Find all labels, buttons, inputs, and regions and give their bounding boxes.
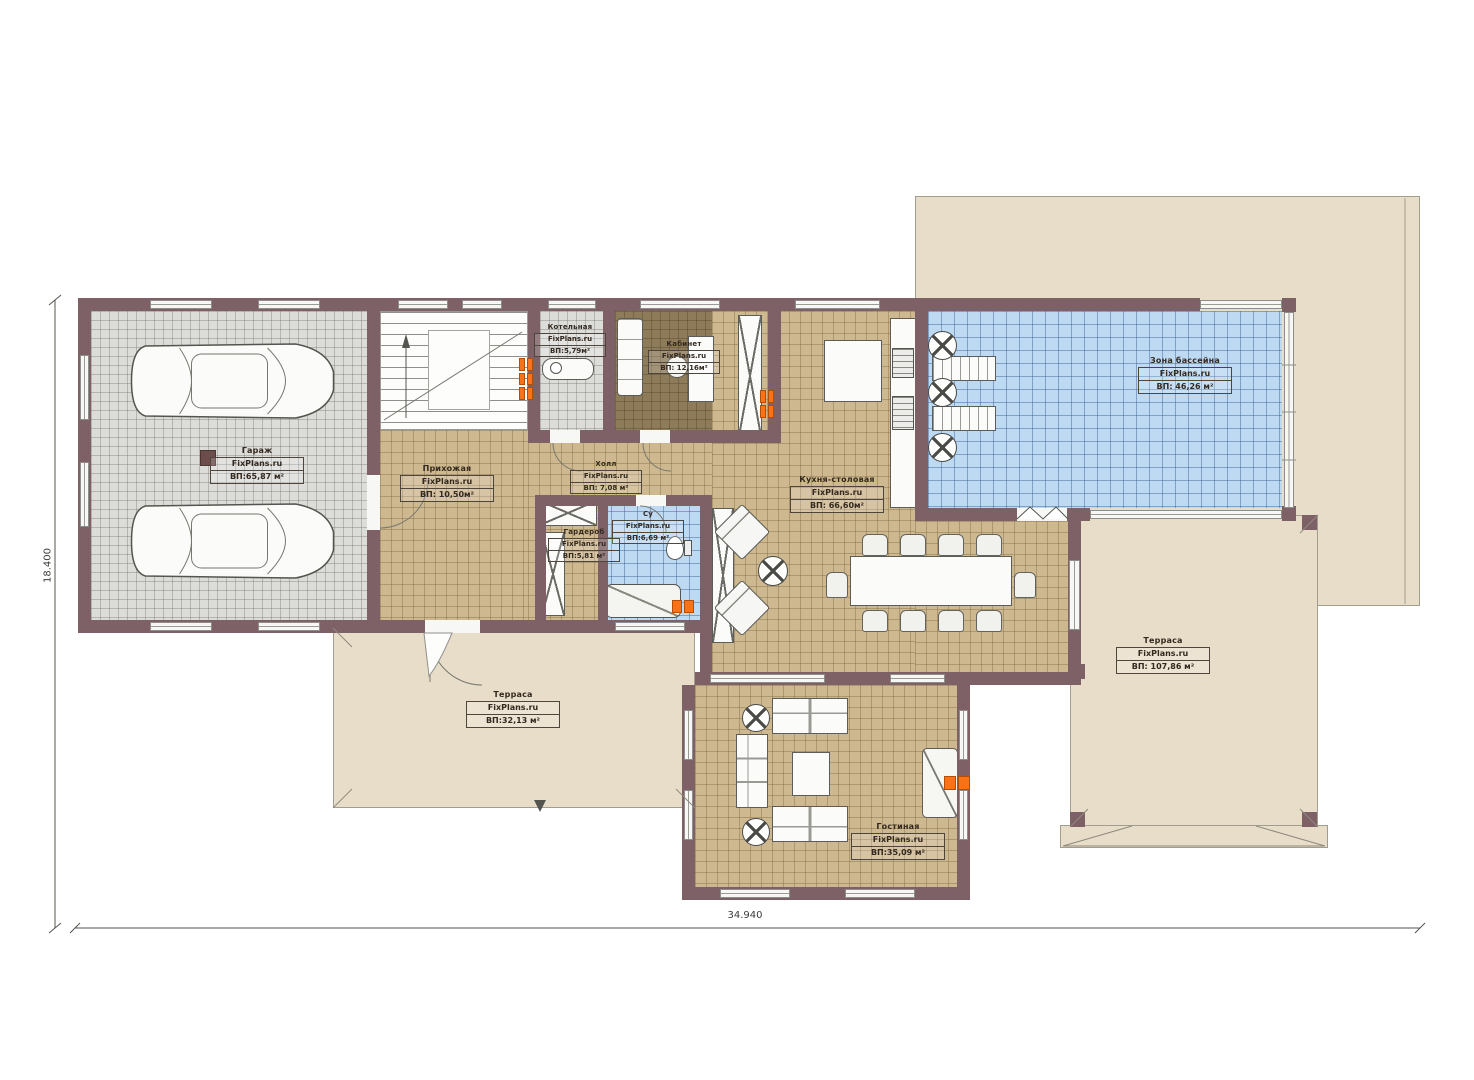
- room-label-garage: Гараж FixPlans.ruВП:65,87 м²: [210, 446, 304, 484]
- wall-segment: [915, 298, 928, 521]
- sliding-door: [710, 674, 825, 683]
- door-opening: [550, 430, 580, 443]
- dining-chair: [862, 610, 888, 632]
- wall-segment: [1067, 508, 1090, 521]
- watermark: FixPlans.ru: [535, 334, 605, 346]
- wall-segment: [367, 298, 380, 633]
- watermark: FixPlans.ru: [467, 702, 559, 715]
- ceiling-light-icon: [928, 331, 957, 360]
- sofa: [772, 698, 848, 734]
- pool-glazing: [1090, 510, 1282, 519]
- window: [258, 300, 320, 309]
- watermark: FixPlans.ru: [211, 458, 303, 471]
- car-icon: [125, 338, 340, 424]
- side-table: [742, 818, 770, 846]
- room-label-boiler: Котельная FixPlans.ruВП:5,79м²: [534, 323, 606, 357]
- window: [959, 790, 968, 840]
- room-label-terrace-left: Терраса FixPlans.ruВП:32,13 м²: [466, 690, 560, 728]
- room-label-kitchen: Кухня-столовая FixPlans.ruВП: 66,60м²: [790, 475, 884, 513]
- watermark: FixPlans.ru: [549, 539, 619, 551]
- dining-chair: [938, 534, 964, 556]
- long-sofa: [736, 734, 768, 808]
- wall-segment: [535, 495, 546, 620]
- wall-segment: [928, 298, 1200, 311]
- wall-segment: [915, 508, 1017, 521]
- terrace-pillar: [1070, 664, 1085, 679]
- stove-icon: [892, 348, 914, 378]
- door-opening: [636, 495, 666, 506]
- window: [80, 355, 89, 420]
- side-table: [742, 704, 770, 732]
- watermark: FixPlans.ru: [571, 471, 641, 483]
- terrace-pillar: [1302, 515, 1317, 530]
- dining-table: [850, 556, 1012, 606]
- window: [684, 790, 693, 840]
- pool-lounger: [932, 406, 996, 431]
- dining-chair: [900, 534, 926, 556]
- kitchen-island: [824, 340, 882, 402]
- room-label-wc: Су FixPlans.ruВП:6,69 м²: [612, 510, 684, 544]
- room-label-entry: Прихожая FixPlans.ruВП: 10,50м²: [400, 464, 494, 502]
- watermark: FixPlans.ru: [401, 476, 493, 489]
- window: [890, 674, 945, 683]
- watermark: FixPlans.ru: [1117, 648, 1209, 661]
- watermark: FixPlans.ru: [1139, 368, 1231, 381]
- terrace-pillar: [1070, 812, 1085, 827]
- watermark: FixPlans.ru: [791, 487, 883, 500]
- window: [80, 462, 89, 527]
- window: [1069, 560, 1080, 630]
- ceiling-light-icon: [928, 433, 957, 462]
- office-wardrobe: [738, 315, 762, 437]
- radiator-icon: [672, 600, 694, 613]
- dining-chair: [976, 610, 1002, 632]
- window: [795, 300, 880, 309]
- dining-chair: [938, 610, 964, 632]
- dimension-width-label: 34.940: [700, 910, 790, 921]
- watermark: FixPlans.ru: [613, 521, 683, 533]
- radiator-icon: [519, 358, 533, 400]
- window: [150, 622, 212, 631]
- window: [640, 300, 720, 309]
- window: [462, 300, 502, 309]
- bathtub: [605, 584, 681, 618]
- sofa: [772, 806, 848, 842]
- wall-pillar: [1282, 298, 1296, 312]
- window: [684, 710, 693, 760]
- wall-segment: [535, 495, 712, 506]
- room-label-hall: Холл FixPlans.ruВП: 7,08 м²: [570, 460, 642, 494]
- room-label-pool: Зона бассейна FixPlans.ruВП: 46,26 м²: [1138, 356, 1232, 394]
- door-opening: [425, 620, 480, 633]
- door-opening: [640, 430, 670, 443]
- boiler-dial-icon: [550, 362, 562, 374]
- floor-plan-canvas: 18.400 34.940 Гараж FixPlans.ruВП:65,87 …: [0, 0, 1474, 1080]
- door-opening: [367, 475, 380, 530]
- dining-chair: [1014, 572, 1036, 598]
- sink-icon: [892, 396, 914, 430]
- room-label-terrace-right: Терраса FixPlans.ruВП: 107,86 м²: [1116, 636, 1210, 674]
- window: [1200, 300, 1282, 309]
- watermark: FixPlans.ru: [649, 351, 719, 363]
- stair-landing: [428, 330, 490, 410]
- office-sofa: [617, 318, 643, 396]
- dimension-height-label: 18.400: [43, 536, 54, 596]
- room-label-wardrobe: Гардероб FixPlans.ruВП:5,81 м²: [548, 528, 620, 562]
- entry-hall-floor: [380, 430, 528, 620]
- folding-door-opening: [1017, 508, 1067, 521]
- room-label-living: Гостиная FixPlans.ruВП:35,09 м²: [851, 822, 945, 860]
- room-label-office: Кабинет FixPlans.ruВП: 12,16м²: [648, 340, 720, 374]
- wall-segment: [768, 311, 781, 443]
- dining-chair: [900, 610, 926, 632]
- wall-segment: [78, 620, 380, 633]
- car-icon: [125, 498, 340, 584]
- radiator-icon: [760, 390, 774, 418]
- ceiling-light-icon: [928, 378, 957, 407]
- window: [720, 889, 790, 898]
- radiator-icon: [944, 776, 970, 790]
- dining-chair: [826, 572, 848, 598]
- round-table: [758, 556, 788, 586]
- wall-segment: [700, 495, 712, 685]
- watermark: FixPlans.ru: [852, 834, 944, 847]
- pool-glazing: [1284, 312, 1294, 508]
- wall-pillar: [1282, 506, 1296, 521]
- toilet-tank: [684, 540, 692, 556]
- dining-chair: [862, 534, 888, 556]
- window: [258, 622, 320, 631]
- terrace-right-roof-edge: [1060, 825, 1328, 848]
- window: [615, 622, 685, 631]
- window: [959, 710, 968, 760]
- window: [150, 300, 212, 309]
- window: [845, 889, 915, 898]
- window: [398, 300, 448, 309]
- window: [548, 300, 596, 309]
- coffee-table: [792, 752, 830, 796]
- terrace-pillar: [1302, 812, 1317, 827]
- dining-chair: [976, 534, 1002, 556]
